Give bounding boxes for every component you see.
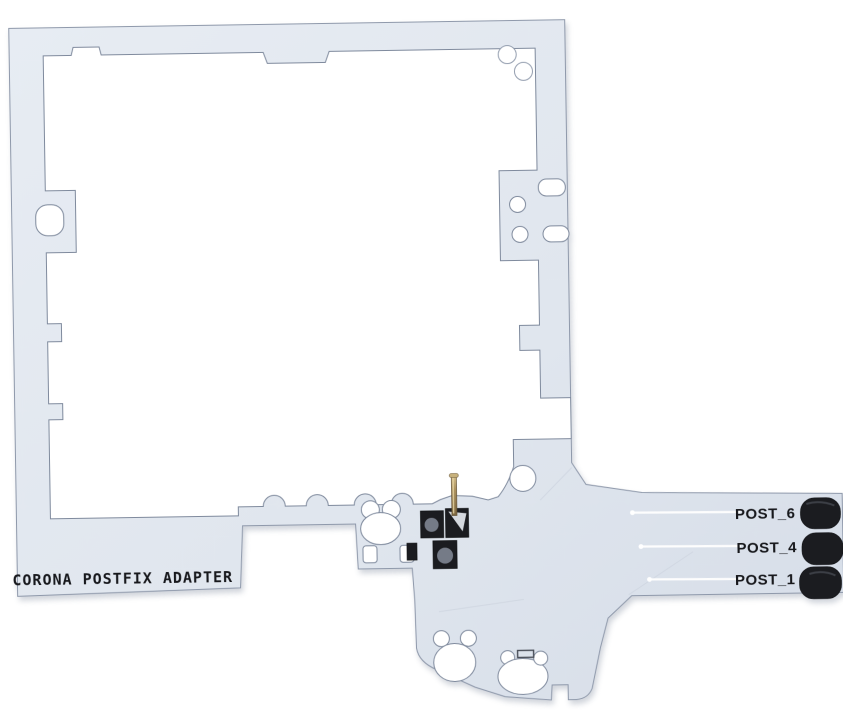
corner-bite-cutout [498,45,516,63]
silkscreen-text: CORONA POSTFIX ADAPTER [12,568,233,589]
alignment-hole-right-bottom [512,226,528,242]
trace-post-4 [643,545,740,548]
post-4-pad [802,532,843,565]
post-4-label: POST_4 [736,539,797,557]
product-photo: CORONA POSTFIX ADAPTER POST_6 POST_4 POS… [0,0,843,710]
corner-bite-cutout [514,62,532,80]
trace-post-1 [651,578,740,580]
solder-pad-edge [407,543,417,560]
bone-slot-right-top [538,179,565,196]
frame-opening-cutout [43,40,572,519]
alignment-hole-right-top [509,196,525,212]
round-hole-cutout [510,465,536,491]
bear-face-cutout-right [498,650,549,695]
post-6-label: POST_6 [735,505,796,523]
post-1-label: POST_1 [735,571,796,589]
pcb-photo-canvas: CORONA POSTFIX ADAPTER POST_6 POST_4 POS… [0,0,843,710]
bone-slot-right-bottom [543,226,569,242]
bracket-cutout-left [363,546,377,563]
mounting-hole-left [36,205,64,236]
